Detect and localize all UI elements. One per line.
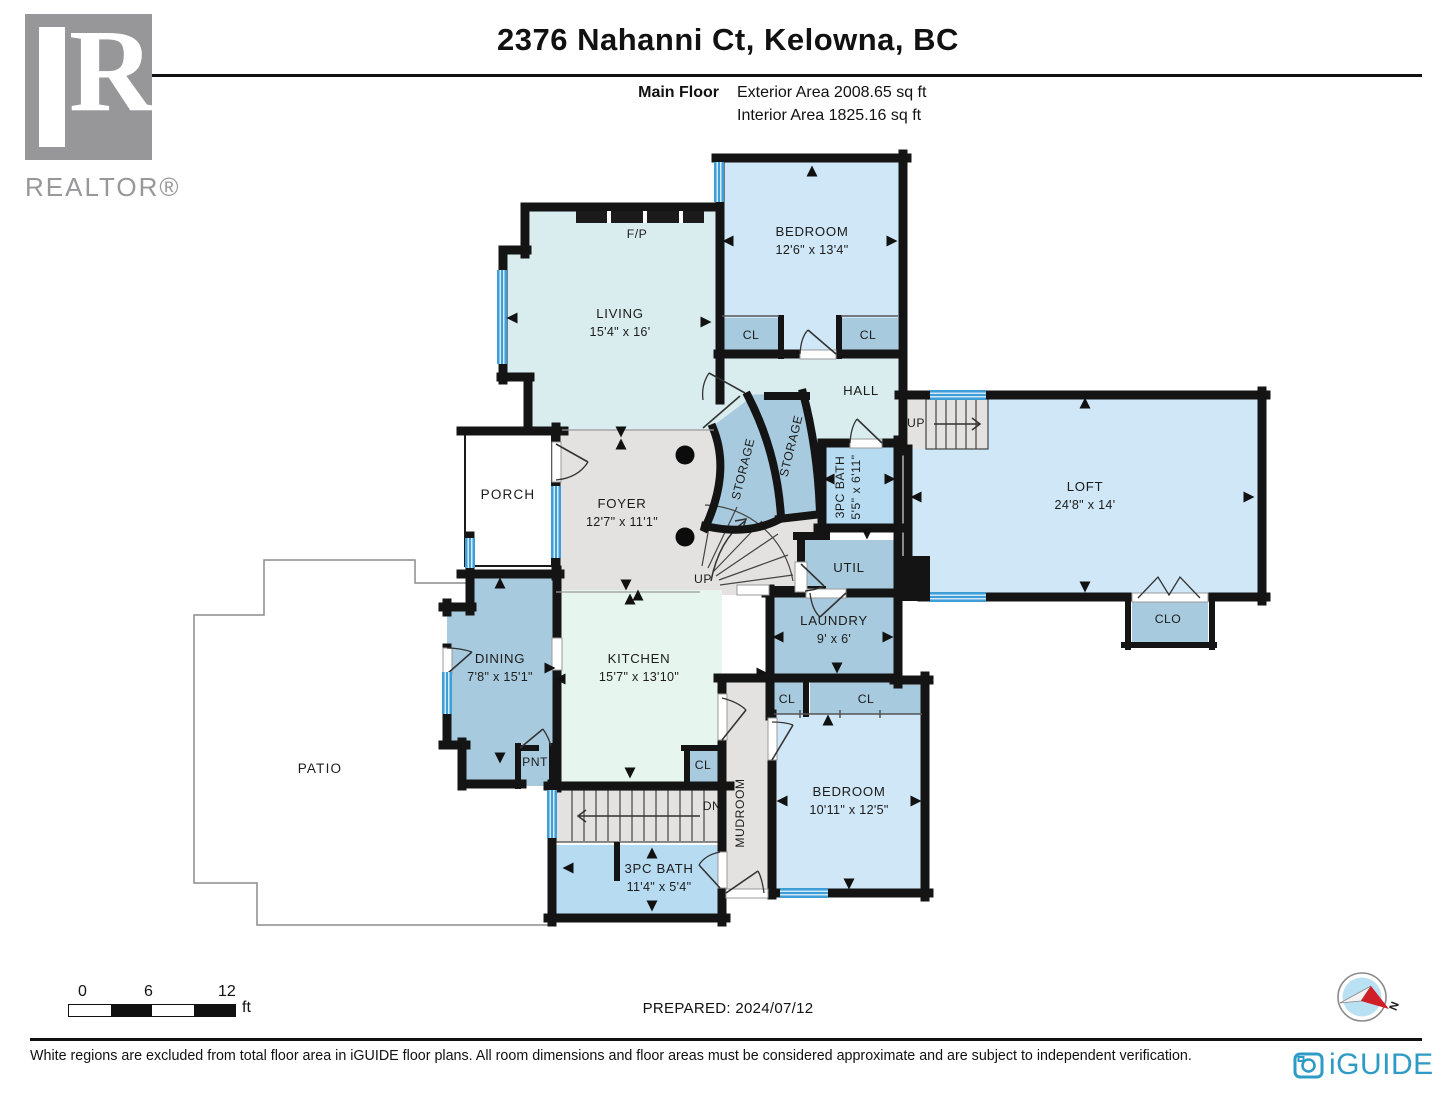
realtor-logo-r: R <box>69 0 154 142</box>
bedroom-top-dims: 12'6" x 13'4" <box>776 243 849 257</box>
iguide-camera-icon <box>1292 1048 1326 1082</box>
realtor-logo-bar <box>39 27 65 147</box>
bath-lower-label: 3PC BATH <box>624 861 693 876</box>
prepared-date: PREPARED: 2024/07/12 <box>0 1000 1456 1017</box>
bath-lower-dims: 11'4" x 5'4" <box>627 880 692 894</box>
closet-top-right-label: CL <box>860 328 877 342</box>
bath-upper-dims: 5'5" x 6'11" <box>849 454 863 519</box>
floorplan-page: { "header": { "title": "2376 Nahanni Ct,… <box>0 0 1456 1112</box>
realtor-logo-block: R <box>25 14 152 160</box>
loft-dims: 24'8" x 14' <box>1055 498 1116 512</box>
iguide-wordmark: iGUIDE <box>1329 1048 1434 1082</box>
closet-hall-wide-label: CL <box>858 692 875 706</box>
living-dims: 15'4" x 16' <box>590 325 651 339</box>
stairs-down-label: DN <box>703 799 722 813</box>
loft-label: LOFT <box>1067 479 1104 494</box>
foyer-dims: 12'7" x 11'1" <box>586 515 658 529</box>
dining-label: DINING <box>475 651 525 666</box>
wall-block <box>900 556 930 601</box>
scale-6: 6 <box>144 983 153 1001</box>
fireplace-label: F/P <box>627 227 647 241</box>
foyer-label: FOYER <box>598 496 647 511</box>
realtor-logo: R REALTOR® <box>25 12 195 207</box>
living-label: LIVING <box>596 306 643 321</box>
laundry-label: LAUNDRY <box>800 613 868 628</box>
closet-kitchen-label: CL <box>695 758 712 772</box>
footer-divider <box>30 1038 1422 1041</box>
iguide-logo: iGUIDE <box>1292 1048 1434 1082</box>
porch-label: PORCH <box>481 487 536 502</box>
fireplace-symbol <box>570 209 710 223</box>
bath-upper-label: 3PC BATH <box>833 456 847 519</box>
bedroom-bottom-dims: 10'11" x 12'5" <box>809 803 888 817</box>
kitchen-label: KITCHEN <box>608 651 671 666</box>
scale-12: 12 <box>218 983 236 1001</box>
bedroom-top-label: BEDROOM <box>775 224 848 239</box>
pantry-label: PNT <box>522 755 548 769</box>
stairs-up-foyer-label: UP <box>694 572 712 586</box>
closet-loft-label: CLO <box>1155 612 1182 626</box>
bedroom-bottom-label: BEDROOM <box>812 784 885 799</box>
kitchen-dims: 15'7" x 13'10" <box>599 670 679 684</box>
hall-label: HALL <box>843 383 879 398</box>
util-label: UTIL <box>833 560 864 575</box>
footer-disclaimer: White regions are excluded from total fl… <box>30 1048 1192 1064</box>
floorplan-canvas: LIVING 15'4" x 16' BEDROOM 12'6" x 13'4"… <box>0 0 1456 1112</box>
closet-hall-small-label: CL <box>779 692 796 706</box>
laundry-dims: 9' x 6' <box>817 632 851 646</box>
scale-0: 0 <box>78 983 87 1001</box>
dining-dims: 7'8" x 15'1" <box>467 670 533 684</box>
realtor-wordmark: REALTOR® <box>25 172 181 203</box>
mudroom-label: MUDROOM <box>733 778 747 847</box>
stairs-up-loft-label: UP <box>907 416 925 430</box>
closet-top-left-label: CL <box>743 328 760 342</box>
patio-label: PATIO <box>298 761 343 776</box>
